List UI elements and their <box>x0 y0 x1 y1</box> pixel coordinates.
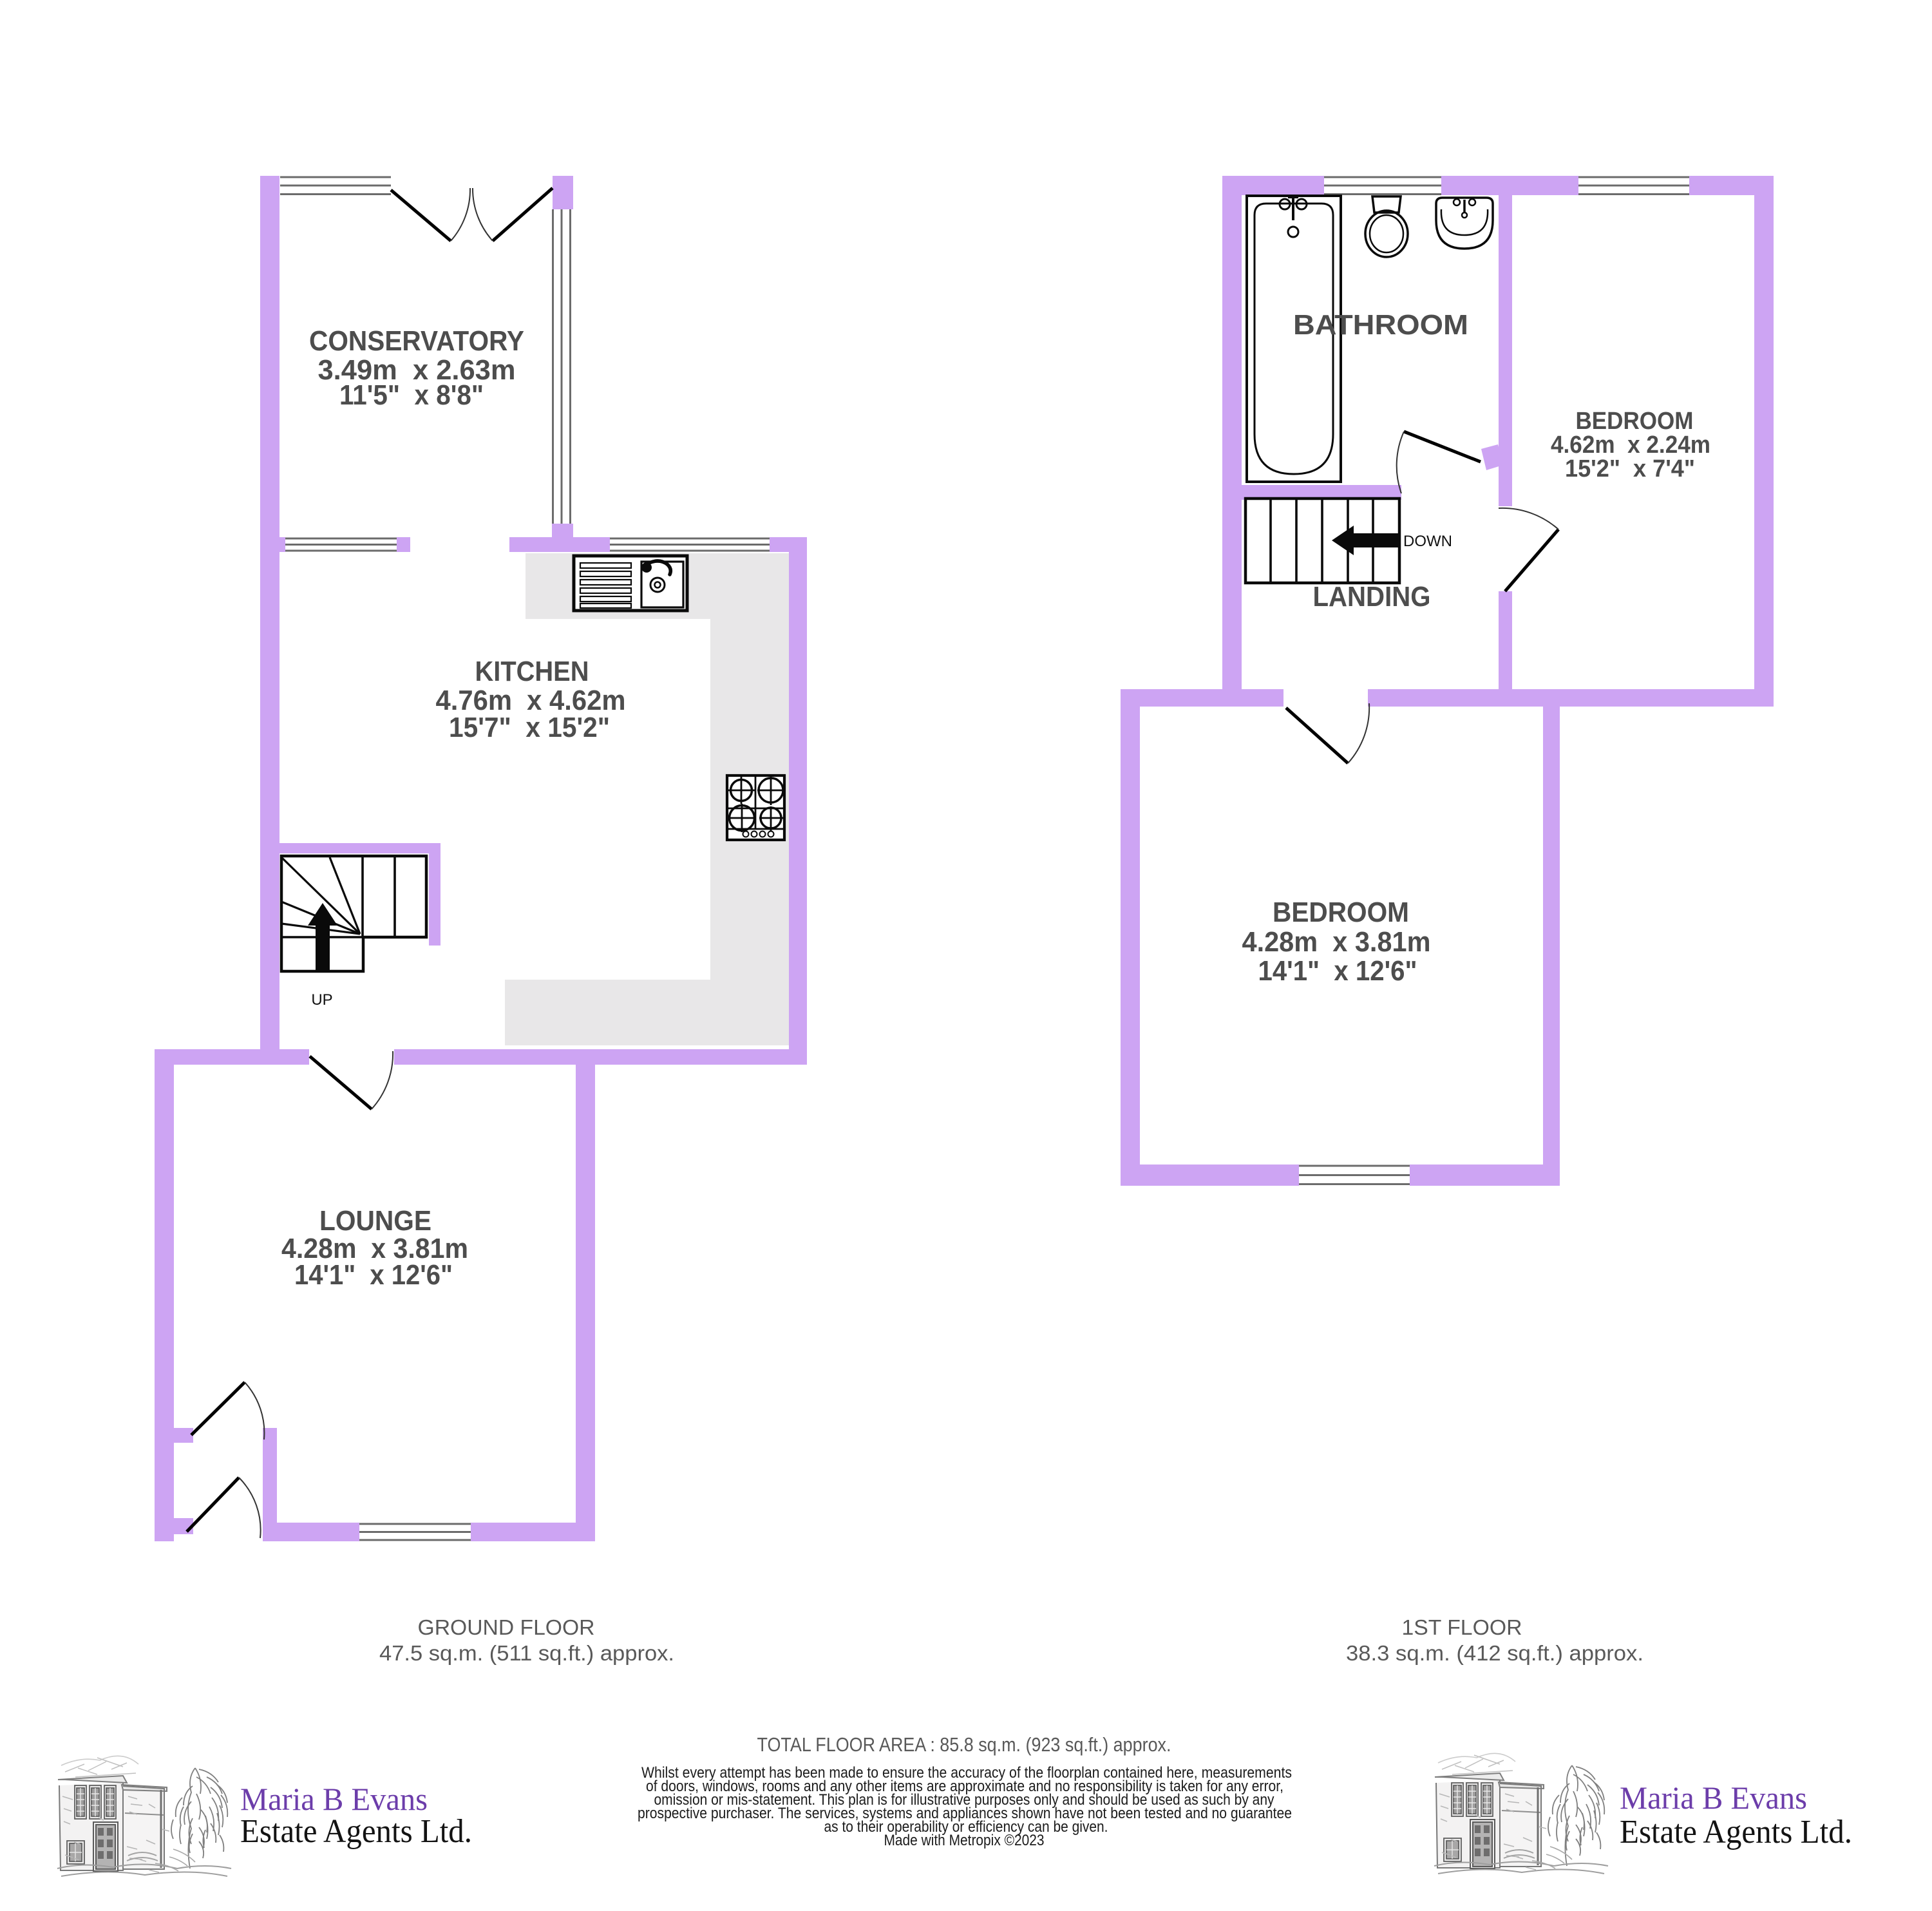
svg-text:KITCHEN: KITCHEN <box>475 656 589 687</box>
svg-text:CONSERVATORY: CONSERVATORY <box>309 325 524 357</box>
svg-text:BATHROOM: BATHROOM <box>1293 309 1468 341</box>
svg-text:LANDING: LANDING <box>1313 581 1431 613</box>
svg-text:Estate Agents Ltd.: Estate Agents Ltd. <box>240 1813 472 1850</box>
svg-text:14'1" x 12'6": 14'1" x 12'6" <box>294 1259 453 1291</box>
svg-text:15'7" x 15'2": 15'7" x 15'2" <box>449 712 610 743</box>
svg-text:DOWN: DOWN <box>1403 533 1452 550</box>
svg-text:47.5 sq.m. (511 sq.ft.) approx: 47.5 sq.m. (511 sq.ft.) approx. <box>379 1641 674 1665</box>
svg-text:15'2" x 7'4": 15'2" x 7'4" <box>1565 455 1695 482</box>
svg-text:Made with Metropix ©2023: Made with Metropix ©2023 <box>884 1832 1045 1849</box>
svg-text:LOUNGE: LOUNGE <box>319 1205 431 1237</box>
svg-text:BEDROOM: BEDROOM <box>1273 897 1409 928</box>
svg-text:Maria B Evans: Maria B Evans <box>1620 1780 1807 1816</box>
svg-text:BEDROOM: BEDROOM <box>1576 408 1694 435</box>
svg-text:1ST FLOOR: 1ST FLOOR <box>1402 1615 1522 1639</box>
svg-text:4.62m x 2.24m: 4.62m x 2.24m <box>1551 432 1710 459</box>
svg-text:Estate Agents Ltd.: Estate Agents Ltd. <box>1620 1814 1852 1850</box>
svg-text:11'5" x 8'8": 11'5" x 8'8" <box>339 379 484 411</box>
svg-text:UP: UP <box>311 991 332 1009</box>
svg-text:Maria B Evans: Maria B Evans <box>240 1781 428 1817</box>
svg-text:4.28m x 3.81m: 4.28m x 3.81m <box>1242 926 1431 958</box>
svg-text:TOTAL FLOOR AREA : 85.8 sq.m.: TOTAL FLOOR AREA : 85.8 sq.m. (923 sq.ft… <box>757 1733 1171 1756</box>
svg-text:GROUND FLOOR: GROUND FLOOR <box>418 1615 595 1639</box>
svg-text:14'1" x 12'6": 14'1" x 12'6" <box>1258 955 1417 987</box>
svg-text:38.3 sq.m. (412 sq.ft.) approx: 38.3 sq.m. (412 sq.ft.) approx. <box>1346 1641 1643 1665</box>
